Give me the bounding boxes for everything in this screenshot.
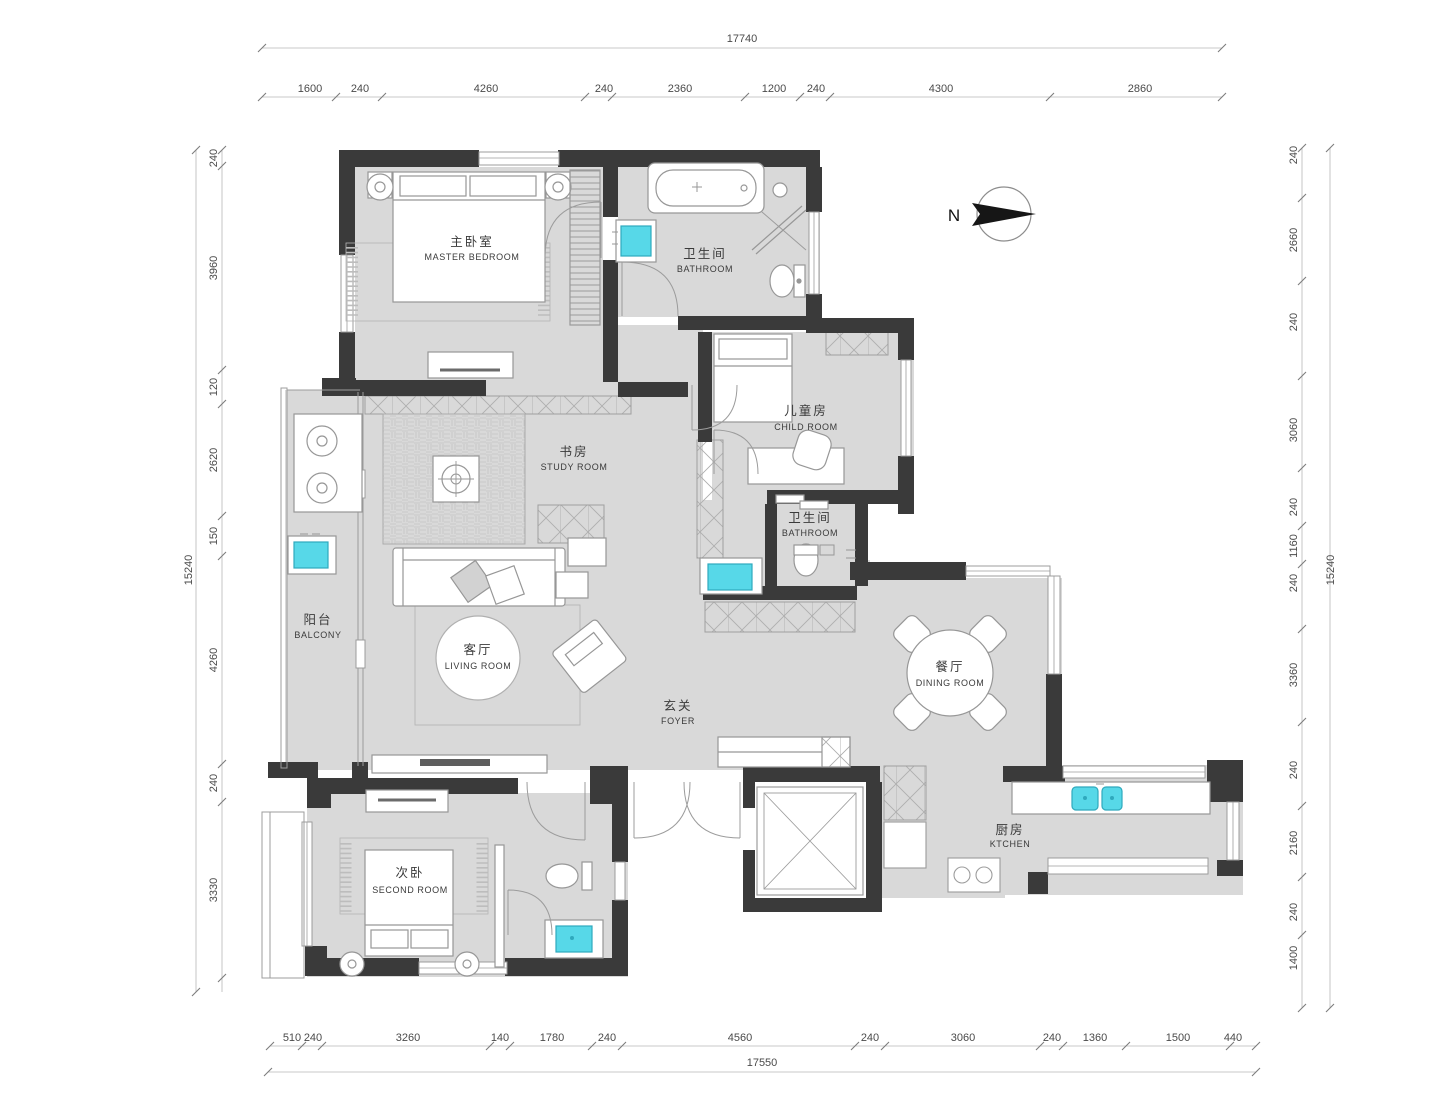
dim-right-seg: 240: [1288, 761, 1300, 779]
dim-left-seg: 3960: [208, 256, 220, 280]
dim-top-seg: 4300: [929, 83, 953, 95]
floor-plan-page: 主卧室 MASTER BEDROOM 卫生间 BATHROOM 儿童房 CHIL…: [0, 0, 1449, 1107]
dim-right-seg: 1400: [1288, 946, 1300, 970]
dining-room-label-zh: 餐厅: [935, 659, 964, 674]
dim-bottom-seg: 240: [304, 1032, 322, 1044]
dim-bottom-seg: 1360: [1083, 1032, 1107, 1044]
dim-bottom-seg: 140: [491, 1032, 509, 1044]
dim-right-total: 15240: [1325, 555, 1337, 586]
dim-right-seg: 240: [1288, 146, 1300, 164]
child-room-label-en: CHILD ROOM: [774, 422, 838, 432]
dim-left-seg: 3330: [208, 878, 220, 902]
dim-right-seg: 3060: [1288, 418, 1300, 442]
dim-bottom-seg: 440: [1224, 1032, 1242, 1044]
dimension-text-left: 15240 240 3960 120 2620 150 4260 240 333…: [183, 149, 220, 902]
bathroom-top-label-zh: 卫生间: [683, 247, 727, 261]
dim-top-seg: 240: [595, 83, 613, 95]
dim-bottom-seg: 510: [283, 1032, 301, 1044]
dim-left-seg: 150: [208, 527, 220, 545]
living-room-label-zh: 客厅: [463, 642, 492, 657]
dim-left-seg: 240: [208, 149, 220, 167]
study-furniture: [383, 414, 525, 544]
master-bedroom-label-zh: 主卧室: [450, 234, 494, 249]
dim-bottom-seg: 1780: [540, 1032, 564, 1044]
dim-top-seg: 240: [807, 83, 825, 95]
dim-bottom-seg: 3260: [396, 1032, 420, 1044]
dim-right-seg: 240: [1288, 903, 1300, 921]
dim-right-seg: 240: [1288, 574, 1300, 592]
dim-top-total: 17740: [727, 33, 758, 45]
dim-top-seg: 1200: [762, 83, 786, 95]
dim-left-total: 15240: [183, 555, 195, 586]
north-arrow-icon: [972, 203, 1036, 226]
study-room-label-zh: 书房: [559, 444, 588, 459]
kitchen-fixtures: [1012, 782, 1210, 814]
north-compass: N: [948, 187, 1036, 241]
child-room-label-zh: 儿童房: [784, 403, 828, 418]
dim-bottom-seg: 240: [861, 1032, 879, 1044]
north-label: N: [948, 206, 960, 225]
dim-top-seg: 1600: [298, 83, 322, 95]
dining-room-label-en: DINING ROOM: [916, 678, 985, 688]
dim-bottom-seg: 3060: [951, 1032, 975, 1044]
dim-top-seg: 2860: [1128, 83, 1152, 95]
dim-bottom-total: 17550: [747, 1057, 778, 1069]
dim-left-seg: 120: [208, 378, 220, 396]
dim-bottom-seg: 1500: [1166, 1032, 1190, 1044]
dimension-text-top: 17740 1600 240 4260 240 2360 1200 240 43…: [298, 33, 1152, 95]
master-bedroom-label-en: MASTER BEDROOM: [425, 252, 520, 262]
balcony-label-en: BALCONY: [294, 630, 341, 640]
dim-left-seg: 240: [208, 774, 220, 792]
floor-plan-drawing: 主卧室 MASTER BEDROOM 卫生间 BATHROOM 儿童房 CHIL…: [0, 0, 1449, 1107]
study-room-label-en: STUDY ROOM: [541, 462, 608, 472]
dim-top-seg: 4260: [474, 83, 498, 95]
dim-top-seg: 240: [351, 83, 369, 95]
second-room-label-en: SECOND ROOM: [372, 885, 448, 895]
dim-right-seg: 2660: [1288, 228, 1300, 252]
dim-bottom-seg: 240: [598, 1032, 616, 1044]
dim-left-seg: 2620: [208, 448, 220, 472]
bathroom-top-label-en: BATHROOM: [677, 264, 733, 274]
dim-right-seg: 240: [1288, 313, 1300, 331]
dim-top-seg: 2360: [668, 83, 692, 95]
dim-right-seg: 2160: [1288, 831, 1300, 855]
foyer-label-en: FOYER: [661, 716, 695, 726]
second-room-label-zh: 次卧: [395, 866, 424, 880]
dim-bottom-seg: 240: [1043, 1032, 1061, 1044]
dim-right-seg: 3360: [1288, 663, 1300, 687]
kitchen-label-en: KTCHEN: [990, 839, 1031, 849]
foyer-furniture: [718, 737, 850, 767]
dim-right-seg: 240: [1288, 498, 1300, 516]
dim-left-seg: 4260: [208, 648, 220, 672]
bathroom-mid-label-en: BATHROOM: [782, 528, 838, 538]
dim-bottom-seg: 4560: [728, 1032, 752, 1044]
elevator: [757, 787, 863, 895]
bathroom-mid-label-zh: 卫生间: [788, 511, 832, 525]
living-room-label-en: LIVING ROOM: [445, 661, 512, 671]
foyer-label-zh: 玄关: [663, 698, 692, 713]
dimension-text-bottom: 17550 510 240 3260 140 1780 240 4560 240…: [283, 1032, 1242, 1069]
dim-right-seg: 1160: [1288, 534, 1300, 558]
kitchen-label-zh: 厨房: [995, 822, 1024, 837]
balcony-label-zh: 阳台: [303, 612, 332, 627]
